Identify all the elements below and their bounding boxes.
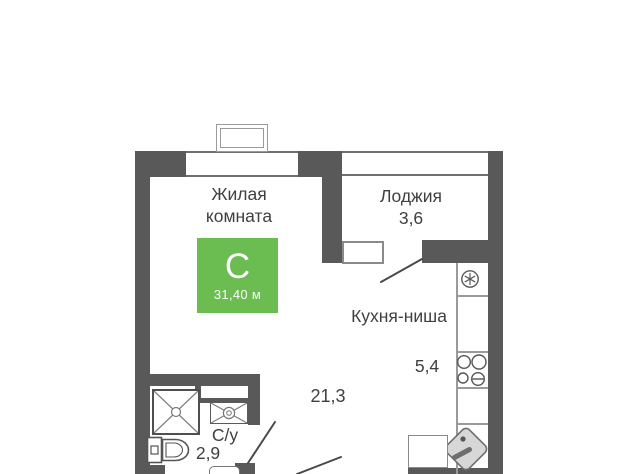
total-area-label: 31,40 м (214, 287, 261, 302)
bathroom-door-swing (248, 422, 275, 463)
bathroom-sink-icon (209, 466, 240, 474)
living-room-label-line2: комната (206, 205, 272, 227)
fridge-icon (460, 269, 480, 289)
window-ledge-frame (220, 128, 264, 148)
loggia-bottom-wall (422, 240, 503, 263)
apartment-type-badge: С 31,40 м (197, 238, 278, 313)
dining-table (408, 435, 448, 468)
wall-stub (135, 465, 165, 474)
toilet-icon (146, 436, 196, 464)
loggia-name: Лоджия (380, 185, 442, 207)
loggia-door-swing (381, 259, 422, 282)
living-room-window (186, 151, 298, 177)
loggia-area: 3,6 (380, 207, 442, 229)
living-room-label: Жилая комната (206, 183, 272, 227)
living-room-label-line1: Жилая (206, 183, 272, 205)
vent-shaft-window (201, 386, 250, 398)
shower-icon (152, 389, 200, 435)
left-wall (135, 151, 150, 474)
top-wall-segment (135, 151, 187, 177)
loggia-block-window (342, 241, 384, 264)
bathroom-area: 2,9 (196, 442, 220, 464)
apartment-type-letter: С (225, 250, 250, 284)
loggia-label: Лоджия 3,6 (380, 185, 442, 229)
floor-plan: Жилая комната С 31,40 м Лоджия 3,6 Кухня… (0, 0, 640, 474)
washing-machine-icon (210, 402, 248, 424)
loggia-glazing (342, 151, 488, 176)
window-ledge (216, 124, 268, 152)
kitchen-name: Кухня-ниша (351, 305, 447, 327)
kitchen-area: 5,4 (415, 355, 439, 377)
kitchen-sink-icon (441, 422, 491, 474)
open-space-area: 21,3 (310, 385, 345, 407)
loggia-divider-wall (322, 151, 342, 263)
bathroom-right-wall (248, 374, 260, 425)
stove-icon (455, 352, 488, 388)
kitchen-counter-divider (457, 295, 488, 297)
entry-door-swing (297, 457, 341, 474)
